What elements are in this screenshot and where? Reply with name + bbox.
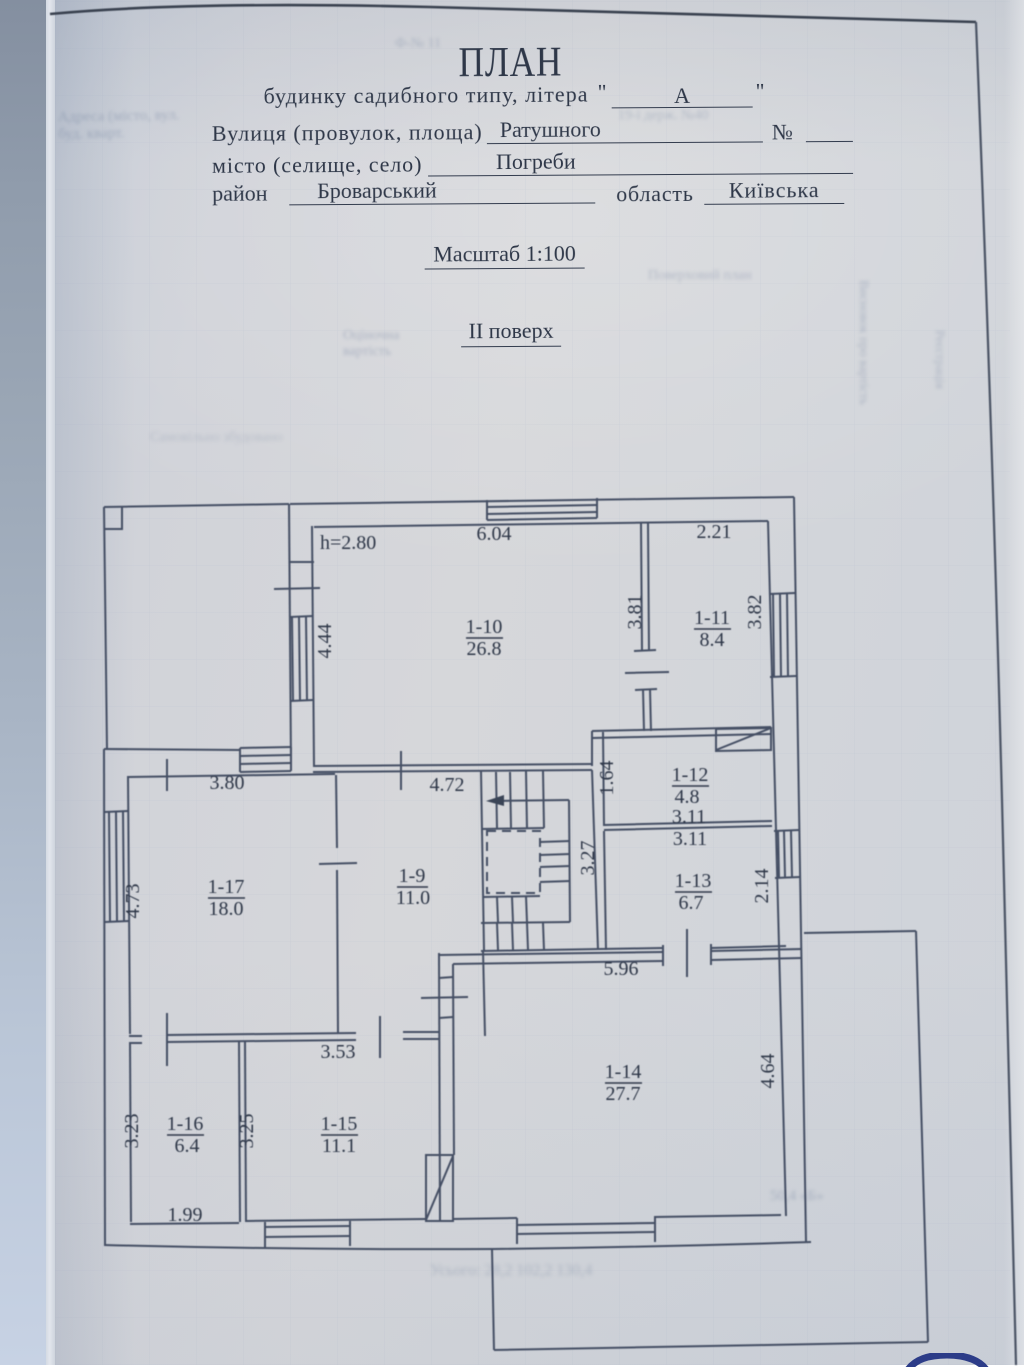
svg-text:3.82: 3.82 xyxy=(744,595,766,630)
svg-text:11.1: 11.1 xyxy=(322,1135,356,1157)
svg-text:1-11: 1-11 xyxy=(694,607,730,629)
svg-text:4.8: 4.8 xyxy=(675,786,700,808)
svg-text:5.96: 5.96 xyxy=(604,958,639,980)
svg-text:3.23: 3.23 xyxy=(121,1114,143,1149)
svg-text:1.64: 1.64 xyxy=(596,761,618,796)
svg-text:4.72: 4.72 xyxy=(430,774,465,796)
svg-text:2.21: 2.21 xyxy=(697,521,732,543)
svg-text:6.04: 6.04 xyxy=(477,523,512,545)
svg-text:1-13: 1-13 xyxy=(675,870,712,892)
svg-text:1-17: 1-17 xyxy=(208,876,245,898)
svg-text:3.11: 3.11 xyxy=(672,806,706,828)
svg-text:1-16: 1-16 xyxy=(167,1113,204,1135)
svg-text:2.14: 2.14 xyxy=(751,869,773,904)
svg-text:3.80: 3.80 xyxy=(210,772,245,794)
svg-text:18.0: 18.0 xyxy=(209,898,244,920)
svg-text:3.25: 3.25 xyxy=(236,1114,258,1149)
svg-text:6.4: 6.4 xyxy=(175,1135,200,1157)
svg-text:8.4: 8.4 xyxy=(700,629,725,651)
svg-text:1-14: 1-14 xyxy=(605,1061,642,1083)
svg-text:h=2.80: h=2.80 xyxy=(320,532,376,554)
svg-text:4.64: 4.64 xyxy=(757,1054,779,1089)
svg-text:4.73: 4.73 xyxy=(122,884,144,919)
svg-text:27.7: 27.7 xyxy=(606,1083,641,1105)
svg-text:4.44: 4.44 xyxy=(314,624,336,659)
svg-text:1-9: 1-9 xyxy=(399,865,426,887)
svg-text:3.11: 3.11 xyxy=(673,828,707,850)
svg-text:26.8: 26.8 xyxy=(467,638,502,660)
svg-text:1.99: 1.99 xyxy=(168,1204,203,1226)
svg-text:3.53: 3.53 xyxy=(321,1041,356,1063)
svg-text:3.81: 3.81 xyxy=(624,595,646,630)
svg-text:1-15: 1-15 xyxy=(321,1113,358,1135)
svg-text:1-10: 1-10 xyxy=(466,616,503,638)
svg-text:3.27: 3.27 xyxy=(577,841,599,876)
svg-text:11.0: 11.0 xyxy=(396,887,430,909)
svg-text:1-12: 1-12 xyxy=(672,764,709,786)
svg-text:6.7: 6.7 xyxy=(679,892,704,914)
